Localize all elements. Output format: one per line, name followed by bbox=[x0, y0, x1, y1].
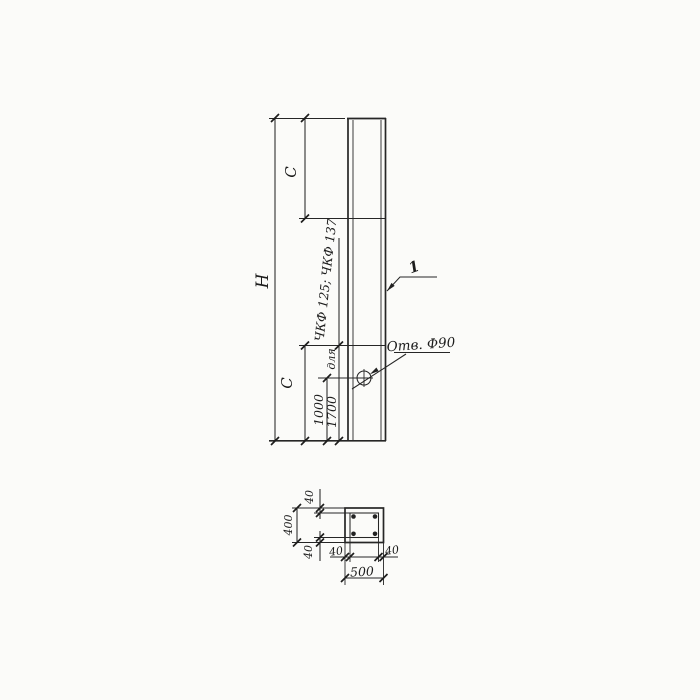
column-elevation: Н С С 1000 1700 для ЧКФ 125; ЧКФ 137 Отв… bbox=[253, 114, 456, 445]
label-dim-1700: 1700 bbox=[324, 396, 339, 428]
label-dim-400: 400 bbox=[282, 515, 295, 537]
column-inner-edges bbox=[353, 120, 381, 440]
label-item-number: 1 bbox=[406, 257, 422, 277]
column-cross-section: 400 40 40 40 40 500 bbox=[282, 489, 400, 585]
rebar-marks bbox=[351, 514, 377, 536]
label-wall-right: 40 bbox=[383, 543, 400, 558]
label-overall-height: Н bbox=[253, 272, 273, 289]
label-bottom-c: С bbox=[278, 377, 296, 389]
label-dim-500: 500 bbox=[350, 563, 375, 579]
label-top-c: С bbox=[282, 166, 300, 178]
technical-drawing: Н С С 1000 1700 для ЧКФ 125; ЧКФ 137 Отв… bbox=[0, 0, 700, 700]
hole-leader-line bbox=[352, 353, 450, 390]
label-wall-left: 40 bbox=[327, 544, 344, 559]
drawing-sheet: Н С С 1000 1700 для ЧКФ 125; ЧКФ 137 Отв… bbox=[0, 0, 700, 700]
label-note-for: для bbox=[325, 348, 338, 369]
label-note-marks: ЧКФ 125; ЧКФ 137 bbox=[312, 218, 340, 342]
label-wall-top: 40 bbox=[303, 490, 316, 505]
label-wall-bottom: 40 bbox=[302, 545, 315, 560]
item-leader-line bbox=[387, 277, 437, 291]
